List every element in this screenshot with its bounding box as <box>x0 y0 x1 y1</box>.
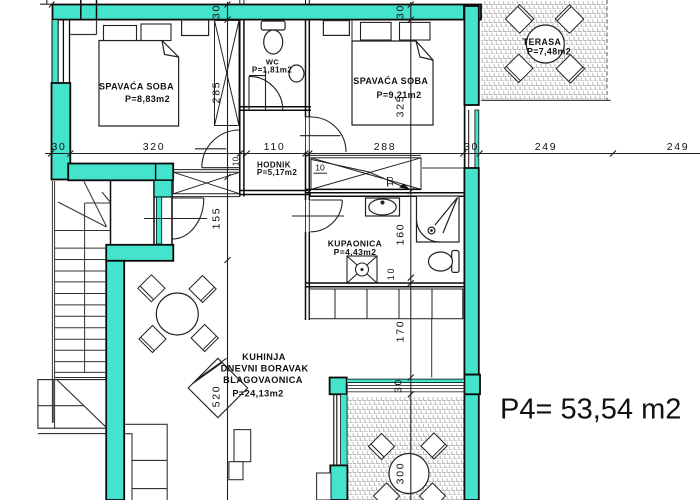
svg-text:P4= 53,54 m2: P4= 53,54 m2 <box>500 394 681 426</box>
svg-text:P=7,48m2: P=7,48m2 <box>527 46 571 56</box>
svg-text:30: 30 <box>51 141 66 153</box>
svg-text:160: 160 <box>395 223 407 246</box>
svg-text:285: 285 <box>211 81 223 104</box>
svg-text:P=1,81m2: P=1,81m2 <box>252 66 292 75</box>
svg-text:320: 320 <box>143 141 166 153</box>
svg-text:10: 10 <box>386 267 396 280</box>
svg-text:P=8,83m2: P=8,83m2 <box>125 94 170 104</box>
svg-text:P=9,21m2: P=9,21m2 <box>377 90 422 100</box>
svg-text:520: 520 <box>211 385 223 408</box>
svg-text:170: 170 <box>395 320 407 343</box>
svg-text:DNEVNI BORAVAK: DNEVNI BORAVAK <box>221 364 309 374</box>
svg-text:30: 30 <box>393 378 405 393</box>
svg-text:BLAGOVAONICA: BLAGOVAONICA <box>223 375 303 385</box>
svg-text:30: 30 <box>211 4 223 19</box>
svg-text:P=5,17m2: P=5,17m2 <box>257 168 297 177</box>
svg-text:P=24,13m2: P=24,13m2 <box>232 389 283 399</box>
svg-text:SPAVAĆA SOBA: SPAVAĆA SOBA <box>353 75 428 86</box>
svg-text:110: 110 <box>264 141 286 153</box>
svg-text:249: 249 <box>667 141 690 153</box>
svg-text:300: 300 <box>395 462 407 485</box>
svg-text:30: 30 <box>464 141 479 153</box>
svg-text:249: 249 <box>535 141 558 153</box>
svg-text:10: 10 <box>315 163 325 173</box>
svg-text:P=4,43m2: P=4,43m2 <box>334 247 377 257</box>
svg-text:SPAVAĆA SOBA: SPAVAĆA SOBA <box>99 81 174 92</box>
svg-text:10: 10 <box>231 157 241 167</box>
svg-text:288: 288 <box>374 141 397 153</box>
svg-text:10: 10 <box>385 177 395 187</box>
svg-text:KUHINJA: KUHINJA <box>242 352 286 362</box>
svg-text:30: 30 <box>395 4 407 19</box>
svg-text:155: 155 <box>211 207 223 230</box>
